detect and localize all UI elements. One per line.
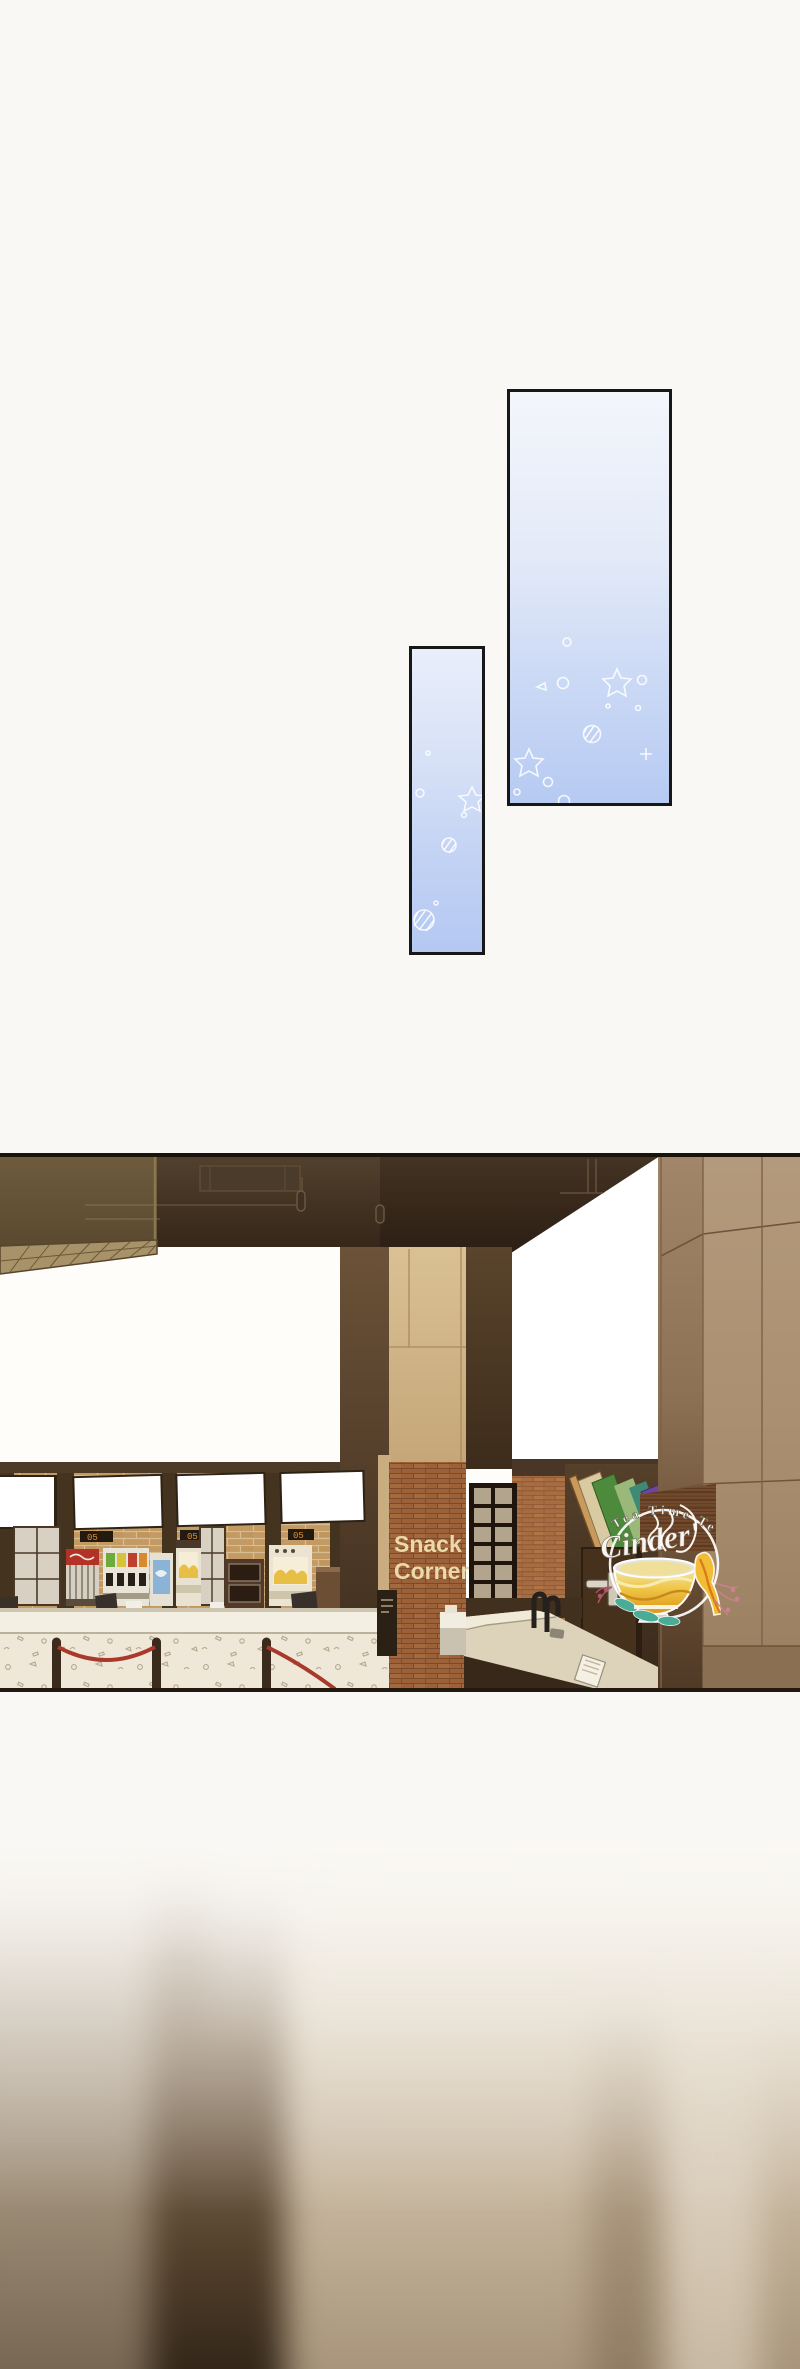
svg-text:05: 05 bbox=[87, 1533, 98, 1543]
svg-text:Snack: Snack bbox=[394, 1531, 462, 1557]
svg-text:Corner: Corner bbox=[394, 1558, 469, 1584]
svg-text:05: 05 bbox=[293, 1531, 304, 1541]
